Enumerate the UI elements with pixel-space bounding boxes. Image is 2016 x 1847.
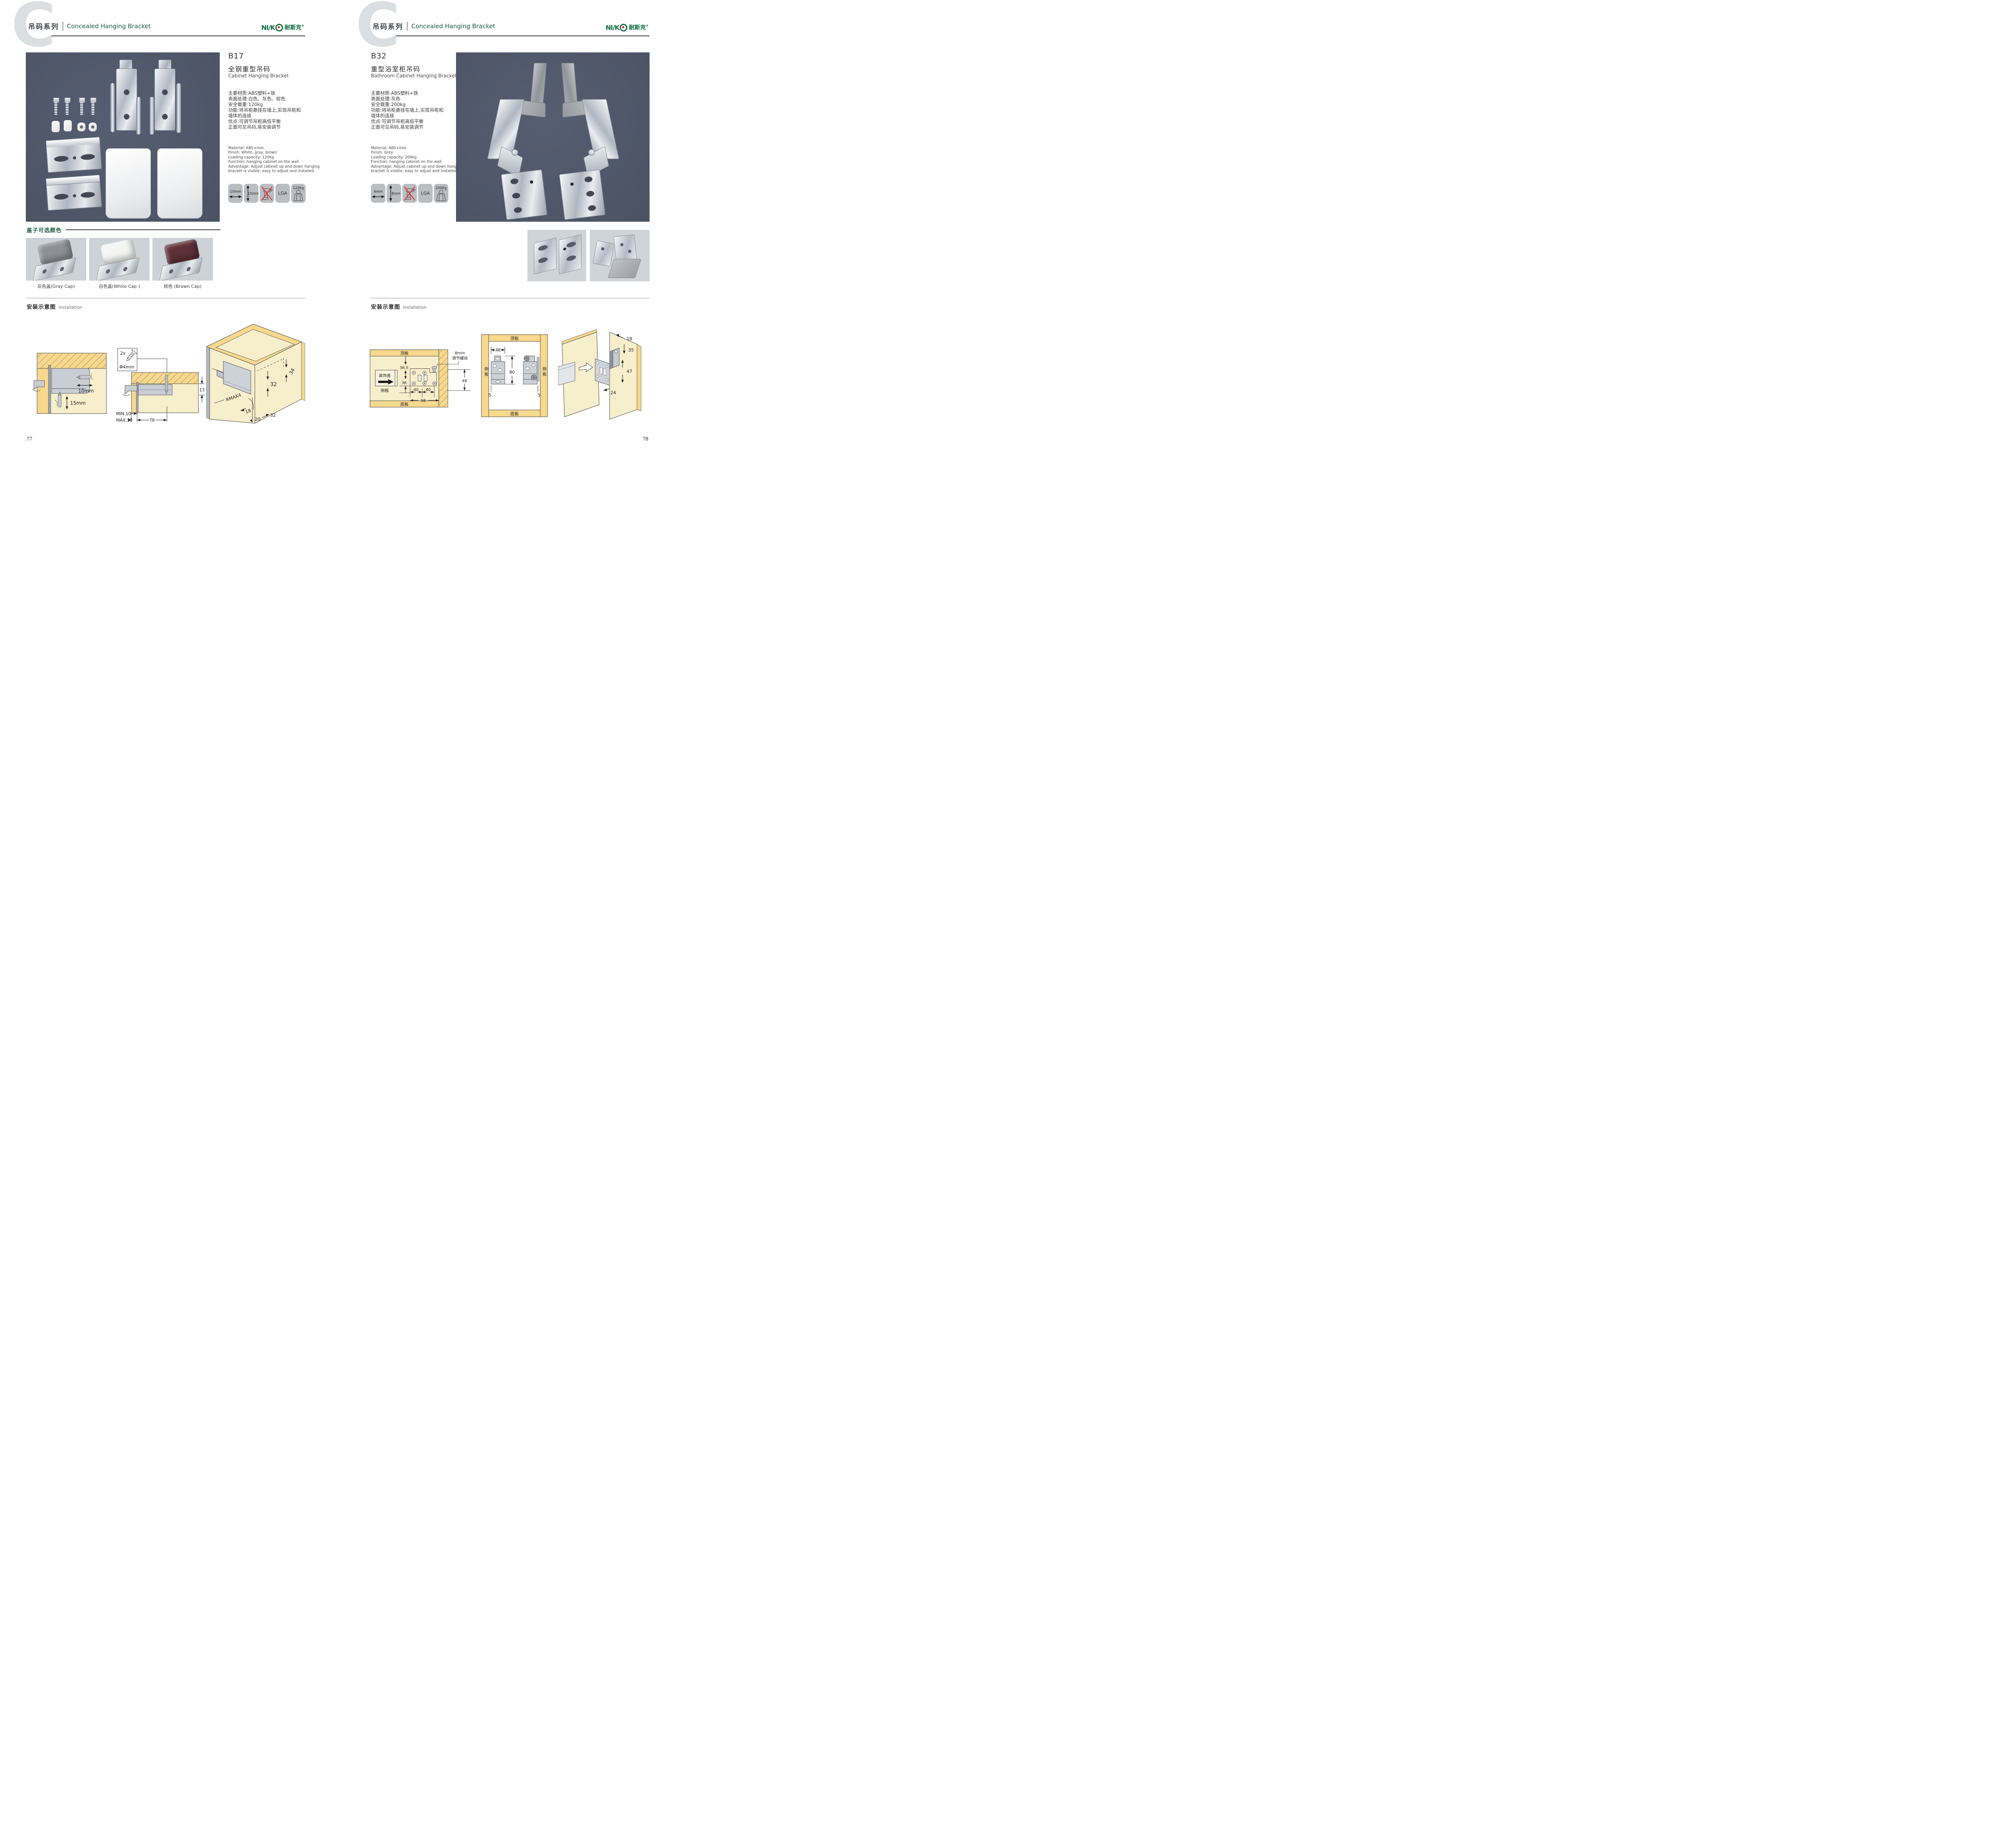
bracket-plate: [154, 69, 175, 131]
label-bottom-board: 底板: [400, 401, 409, 407]
spec-line: 正面可见吊码,易安装调节: [228, 124, 301, 130]
bracket-piece: [593, 241, 614, 267]
load-weight-graphic: 120Kg: [291, 184, 306, 203]
dim-15mm: 15mm: [70, 400, 86, 406]
adjust-screw-rod: [110, 83, 115, 132]
spec-line: 安全载重:200kg: [371, 102, 444, 107]
installation-title-cn: 安装示意图: [27, 302, 56, 310]
spec-line: Function: hanging cabinet on the wall: [371, 160, 462, 164]
product-name-cn: 重型浴室柜吊码: [371, 64, 421, 73]
chrome-l-bracket: [483, 96, 535, 177]
dim-80: 80: [509, 370, 514, 375]
spec-line: Material: ABS+iron: [228, 146, 320, 150]
spec-line: 表面处理:白色、灰色、棕色: [228, 96, 301, 102]
screw-qty-label: 2x: [120, 351, 126, 356]
spec-line: 优点:可调节吊柜高低平衡: [228, 119, 301, 124]
adjust-screw-rod: [150, 97, 154, 135]
chrome-l-bracket: [572, 96, 624, 177]
diagram-b32-front: 顶板 底板 48 80: [480, 333, 549, 418]
label-top-board: 顶板: [510, 336, 519, 341]
chrome-plate: [559, 169, 605, 220]
page-number-right: 78: [643, 436, 648, 443]
adjust-screw-rod: [176, 83, 181, 133]
dim-78: 78: [149, 418, 154, 423]
note-8mm: 8mm: [455, 351, 465, 356]
diagram-b32-perspective: 18 35 47 24: [558, 327, 652, 422]
product-specs-cn: 主要材质:ABS塑料+铁 表面处理:灰色 安全载重:200kg 功能:将吊柜悬挂…: [371, 90, 444, 130]
product-specs-cn: 主要材质:ABS塑料+铁 表面处理:白色、灰色、棕色 安全载重:120kg 功能…: [228, 90, 301, 130]
product-name-en: Cabinet Hanging Bracket: [228, 73, 289, 79]
icon-label: 8mm: [392, 192, 400, 196]
screw-shank: [66, 102, 69, 115]
dim-min10: MIN.10: [116, 412, 131, 416]
dim-48: 48: [462, 379, 467, 383]
cap-option-gray: [26, 238, 86, 281]
section-divider: [26, 298, 305, 298]
icon-label: LGA: [418, 184, 433, 203]
no-drill-graphic: [402, 184, 417, 203]
icon-label: 10mm: [230, 190, 241, 194]
wall-mount-plate: [46, 175, 102, 210]
dim-5-right: 5: [538, 393, 541, 398]
page-header-right: 吊码系列 Concealed Hanging Bracket: [373, 21, 495, 31]
screw-shank: [54, 102, 57, 115]
detail-photo-bracket: [590, 230, 650, 281]
label-side-board: 侧板: [381, 388, 389, 393]
icon-label: 15mm: [248, 192, 258, 196]
spec-line: 安全载重:120kg: [228, 102, 301, 107]
brand-logo-dot-icon: [278, 26, 280, 28]
white-cover-cap: [106, 148, 151, 218]
product-name-cn: 全钢重型吊码: [228, 64, 271, 73]
spec-line: bracket is visible, easy to adjust and i…: [371, 169, 462, 173]
spec-line: Advantage: Adjust cabinet up and down ha…: [371, 164, 462, 169]
plate-flange: [46, 175, 100, 185]
dim-36: 36: [402, 381, 407, 385]
installation-title-cn: 安装示意图: [371, 302, 400, 310]
load-weight-icon: 120Kg: [291, 184, 306, 203]
hanging-bracket-assembly: [149, 60, 181, 139]
label-side-board-left: 侧板: [483, 367, 489, 377]
spec-line: Advantage: Adjust cabinet up and down ha…: [228, 164, 320, 169]
product-specs-en: Material: ABS+iron Finish: Grey Loading …: [371, 146, 462, 173]
dim-40a: 40: [414, 388, 419, 392]
wall-anchor: [64, 120, 72, 131]
spec-line: 表面处理:灰色: [371, 96, 444, 102]
width-arrow-icon: 4mm: [371, 184, 385, 203]
brand-logo-cn: 耐斯克: [629, 23, 646, 31]
label-top-board: 顶板: [400, 351, 409, 356]
product-photo-b17: [26, 52, 220, 222]
white-cover-cap: [157, 148, 202, 218]
plate-flange: [46, 137, 100, 147]
cabinet-top-section: [123, 372, 198, 413]
installation-title-en: Installation: [59, 305, 82, 310]
icon-label: LGA: [275, 184, 290, 203]
brand-logo-dot-icon: [622, 26, 624, 28]
spec-line: 主要材质:ABS塑料+铁: [371, 90, 444, 96]
product-specs-en: Material: ABS+iron Finish: White, gray, …: [228, 146, 320, 173]
mount-plate-3d: [595, 359, 610, 385]
brand-logo-latin: NI/K: [261, 24, 275, 31]
height-arrow-icon: 8mm: [387, 184, 401, 203]
caps-header-line: [66, 229, 221, 230]
adjust-screw-rod: [136, 97, 141, 135]
spec-line: Finish: Grey: [371, 150, 462, 155]
note-adjust-screw: 调节螺丝: [452, 356, 468, 361]
spec-line: 主要材质:ABS塑料+铁: [228, 90, 301, 96]
product-name-en: Bathroom Cabinet Hanging Bracket: [371, 73, 457, 79]
label-decor-cover: 装饰盖: [379, 373, 391, 378]
no-drill-graphic: [260, 184, 274, 203]
hanging-bracket-assembly: [110, 60, 142, 139]
spec-line: 功能:将吊柜悬挂在墙上,实现吊柜和: [371, 107, 444, 113]
product-code: B32: [371, 52, 387, 60]
wall-mount-plate: [46, 137, 102, 173]
bracket-piece: [559, 234, 581, 275]
width-arrow-icon: 10mm: [228, 184, 243, 203]
dim-98: 98: [421, 399, 426, 403]
width-arrow-graphic: 4mm: [371, 184, 385, 203]
dim-47: 47: [627, 369, 632, 374]
cap-label: 白色盖(White Cap ): [89, 283, 150, 289]
spec-line: Function: hanging cabinet on the wall: [228, 160, 320, 164]
lga-cert-icon: LGA: [275, 184, 290, 203]
diagram-b32-elevation: 顶板 底板 侧板 装饰盖 36.5 36: [368, 347, 477, 414]
wall-anchor: [52, 121, 60, 132]
dim-18: 18: [627, 336, 632, 341]
diagram-b17-section-2: 2x Φ4mm 13 MIN.10 MAX.30: [115, 346, 208, 423]
wall-anchor: [77, 123, 85, 131]
registered-mark: ®: [302, 24, 304, 27]
dim-24: 24: [610, 390, 616, 395]
spec-line: Finish: White, gray, brown: [228, 150, 320, 155]
cap-label: 棕色 (Brown Cap): [152, 283, 213, 289]
bracket-plate: [116, 69, 137, 131]
dim-32b: 32: [270, 413, 276, 418]
series-title-en: Concealed Hanging Bracket: [411, 23, 495, 30]
icon-label: 120Kg: [293, 186, 304, 190]
label-bottom-board: 底板: [510, 411, 519, 416]
spec-line: Loading capacity: 120kg: [228, 155, 320, 160]
page-header-left: 吊码系列 Concealed Hanging Bracket: [28, 21, 151, 31]
chrome-plate: [501, 169, 547, 220]
gray-wedge-piece: [608, 259, 641, 278]
header-divider: [407, 22, 408, 31]
diagram-b17-perspective: 34 32 RMAX4 18 20 32: [201, 322, 306, 428]
height-arrow-graphic: 8mm: [387, 184, 401, 203]
no-drill-icon: [402, 184, 417, 203]
screw-shank: [80, 102, 83, 115]
dim-35: 35: [628, 347, 634, 353]
load-weight-icon: 200Kg: [434, 184, 448, 203]
header-rule: [52, 35, 305, 36]
dim-48: 48: [495, 348, 500, 353]
header-rule: [396, 35, 650, 36]
cabinet-section: [32, 353, 106, 414]
dim-5-left: 5: [489, 393, 492, 398]
series-title-cn: 吊码系列: [28, 21, 59, 31]
height-arrow-icon: 15mm: [244, 184, 258, 203]
header-divider: [62, 22, 63, 31]
brand-logo-o-icon: [620, 24, 627, 31]
installation-header: 安装示意图 Installation: [371, 302, 427, 310]
cap-option-brown: [152, 238, 213, 281]
spec-line: Loading capacity: 200kg: [371, 155, 462, 160]
dim-10mm: 10mm: [78, 388, 94, 394]
width-arrow-graphic: 10mm: [228, 184, 243, 203]
spec-line: 墙体的连接: [228, 113, 301, 119]
page-number-left: 77: [27, 436, 32, 443]
lga-cert-icon: LGA: [418, 184, 433, 203]
feature-icons-b32: 4mm 8mm LGA: [371, 184, 448, 203]
bracket-piece: [534, 237, 556, 275]
height-arrow-graphic: 15mm: [244, 184, 258, 203]
registered-mark: ®: [646, 24, 649, 27]
dim-20: 20: [255, 417, 260, 422]
spec-line: Material: ABS+iron: [371, 146, 462, 150]
label-side-board-right: 侧板: [541, 367, 547, 377]
series-title-cn: 吊码系列: [373, 21, 403, 31]
product-photo-b32: [456, 52, 650, 222]
installation-title-en: Installation: [403, 305, 427, 310]
brand-logo-o-icon: [275, 24, 283, 31]
load-weight-graphic: 200Kg: [434, 184, 448, 203]
feature-icons-b17: 10mm 15mm LGA: [228, 184, 306, 203]
diagram-b17-section-1: 10mm 15mm: [31, 350, 112, 418]
spec-line: 正面可见吊码,易安装调节: [371, 124, 444, 130]
installation-header: 安装示意图 Installation: [27, 302, 82, 310]
dim-36-5: 36.5: [400, 366, 408, 370]
series-title-en: Concealed Hanging Bracket: [67, 23, 151, 30]
brand-logo-latin: NI/K: [606, 24, 619, 31]
icon-label: 4mm: [374, 190, 383, 194]
detail-photo-plates: [527, 230, 586, 281]
wall-anchor: [89, 123, 97, 131]
screw-dia-label: Φ4mm: [119, 364, 134, 370]
no-drill-icon: [260, 184, 274, 203]
caps-section-header: 盖子可选颜色: [27, 226, 221, 234]
dim-40b: 40: [426, 388, 431, 392]
cap-option-white: [89, 238, 150, 281]
spec-line: 墙体的连接: [371, 113, 444, 119]
dim-32: 32: [270, 382, 277, 388]
caps-section-title: 盖子可选颜色: [27, 226, 62, 234]
spec-line: 功能:将吊柜悬挂在墙上,实现吊柜和: [228, 107, 301, 113]
brand-logo: NI/K 耐斯克 ®: [261, 23, 304, 31]
product-code: B17: [228, 52, 244, 60]
spec-line: bracket is visible, easy to adjust and i…: [228, 169, 320, 173]
cap-label: 灰色盖(Gray Cap): [26, 283, 86, 289]
catalog-spread: C 吊码系列 Concealed Hanging Bracket NI/K 耐斯…: [0, 0, 676, 462]
brand-logo: NI/K 耐斯克 ®: [606, 23, 649, 31]
spec-line: 优点:可调节吊柜高低平衡: [371, 119, 444, 124]
section-divider: [370, 298, 650, 298]
icon-label: 200Kg: [435, 186, 446, 190]
screw-shank: [92, 102, 94, 115]
brand-logo-cn: 耐斯克: [285, 23, 302, 31]
